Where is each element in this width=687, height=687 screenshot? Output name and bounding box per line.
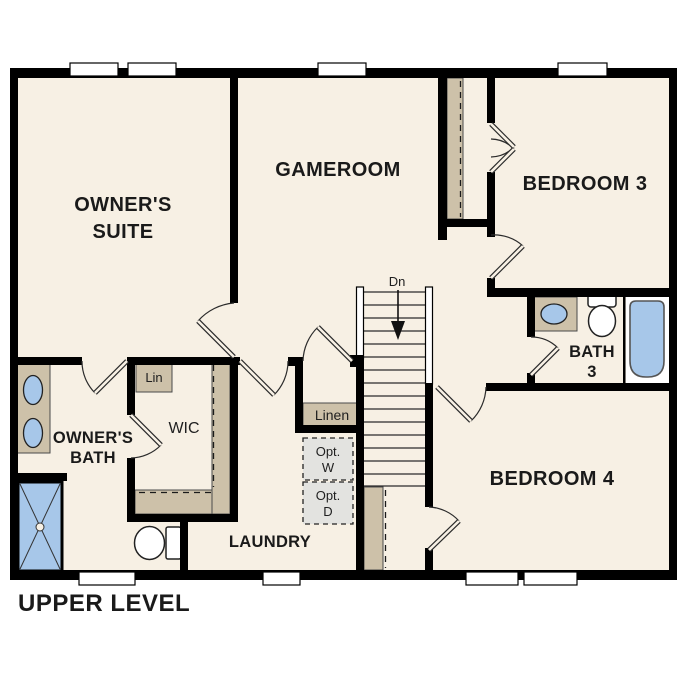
label-owners-suite-2: SUITE [93,221,154,243]
wall-bath-laundry [180,514,188,574]
label-laundry: LAUNDRY [229,533,311,551]
wall-b4closet-stub [425,548,433,570]
label-owners-suite-1: OWNER'S [74,194,172,216]
wall-suite-south-west [18,357,82,365]
window-bedroom4-1 [466,572,518,585]
label-owners-bath-1: OWNER'S [53,429,133,447]
wall-bedroom4-north [486,383,677,391]
window-suite-2 [128,63,176,76]
wall-tub-divider [623,297,626,383]
wall-outer-left [10,68,18,580]
stair-rail-left [357,287,364,359]
window-gameroom [318,63,366,76]
owners-toilet-bowl-icon [135,527,165,560]
label-gameroom: GAMEROOM [275,159,400,181]
wall-wic-west-upper [127,357,135,415]
label-opt-washer-1: Opt. [316,444,341,459]
wall-bedroom3-west-a [487,78,495,123]
window-laundry [263,572,300,585]
owners-toilet-tank [166,527,181,559]
wall-b3closet-south [438,219,495,227]
label-linen: Linen [315,407,349,423]
page-title: UPPER LEVEL [18,590,190,617]
label-bath3-2: 3 [587,363,596,381]
label-bath3-1: BATH [569,343,615,361]
floor-plan-page: OWNER'S SUITE GAMEROOM BEDROOM 3 BEDROOM… [0,0,687,687]
owners-sink-2-icon [24,419,43,448]
wall-linen-south [295,425,362,433]
label-bedroom3: BEDROOM 3 [523,173,648,195]
bathtub-icon [630,301,664,377]
wall-stair-west [356,358,364,570]
wall-stair-east [425,383,433,507]
label-opt-dryer-1: Opt. [316,488,341,503]
stair-rail-right [426,287,433,384]
label-opt-dryer-2: D [323,504,332,519]
wall-gameroom-east [438,78,447,240]
bath3-toilet-bowl-icon [589,306,616,337]
window-suite-1 [70,63,118,76]
wall-linen-west [295,357,303,433]
wall-suite-south-east [127,357,240,365]
wall-wic-west-lower [127,458,135,522]
label-opt-washer-2: W [322,460,335,475]
owners-sink-1-icon [24,376,43,405]
wic-shelf-east [212,361,230,514]
label-bedroom4: BEDROOM 4 [490,468,615,490]
wall-bedroom3-west-b [487,172,495,237]
window-bedroom4-2 [524,572,577,585]
label-wic: WIC [168,420,199,437]
floor-plan-svg: OWNER'S SUITE GAMEROOM BEDROOM 3 BEDROOM… [0,0,687,687]
wall-outer-right [669,68,677,580]
label-stairs-dn: Dn [389,274,406,289]
label-owners-bath-2: BATH [70,449,116,467]
shower-drain-icon [36,523,44,531]
wall-wic-east [230,357,238,522]
label-lin: Lin [145,370,162,385]
window-bath-bottom [79,572,135,585]
wic-shelf-south [135,490,212,514]
wall-shower-divider [18,473,67,481]
window-bedroom3 [558,63,607,76]
wall-suite-gameroom [230,78,238,303]
wall-bath3-west [527,297,535,337]
bath3-sink-icon [541,304,567,324]
wall-bedroom3-south [487,288,677,297]
bedroom4-closet-shelf [364,487,383,570]
